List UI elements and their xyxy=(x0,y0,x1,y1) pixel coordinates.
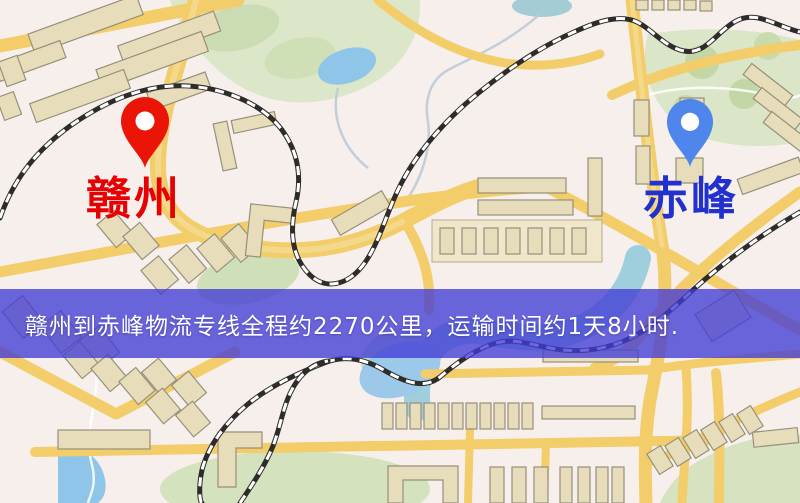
origin-city-label: 赣州 xyxy=(86,176,182,221)
map-screenshot: 赣州 赤峰 赣州到赤峰物流专线全程约2270公里，运输时间约1天8小时. xyxy=(0,0,800,503)
origin-pin-hole xyxy=(136,112,155,131)
route-info-banner: 赣州到赤峰物流专线全程约2270公里，运输时间约1天8小时. xyxy=(0,289,800,358)
destination-pin-icon[interactable] xyxy=(667,99,713,167)
route-info-text: 赣州到赤峰物流专线全程约2270公里，运输时间约1天8小时. xyxy=(25,307,679,341)
map-canvas[interactable] xyxy=(0,0,800,503)
pond-top xyxy=(512,0,572,17)
destination-pin-hole xyxy=(681,113,699,131)
destination-city-label: 赤峰 xyxy=(643,176,739,221)
destination-marker[interactable] xyxy=(667,99,713,167)
